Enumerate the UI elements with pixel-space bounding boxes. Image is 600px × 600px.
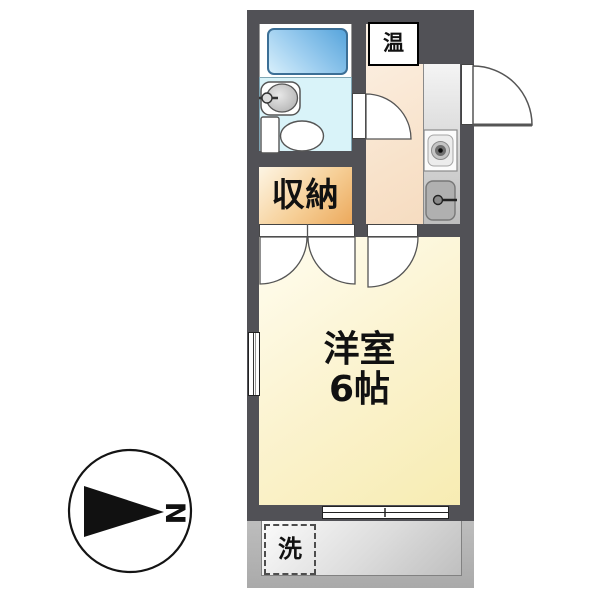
washing-machine-label-text: 洗 [278,536,302,562]
main-room-name: 洋室 [323,330,395,370]
main-room-label: 洋室 6帖 [259,328,460,412]
compass-north-label: N [158,497,190,529]
bathroom-door-opening [352,93,366,139]
kitchen-counter [423,64,460,224]
compass-north-letter: N [159,502,189,525]
bathroom-floor [259,77,352,153]
entrance-door-swing [473,66,532,125]
bathtub [267,28,348,75]
wall-entry-block [419,10,474,64]
storage-label-text: 収納 [272,177,340,213]
floor-plan: 温 [0,0,600,600]
hall-door-opening [367,224,418,237]
wall-left [247,10,259,521]
water-heater-box: 温 [368,22,419,66]
washing-machine-label: 洗 [264,524,316,575]
entrance-door-opening [461,64,474,125]
main-room-size: 6帖 [329,370,390,410]
window-balcony [322,506,449,519]
closet-door-opening [259,224,355,237]
water-heater-label: 温 [383,32,404,55]
storage-label: 収納 [259,167,352,224]
wall-under-bathroom [247,151,355,167]
compass-north-arrow [84,486,164,537]
